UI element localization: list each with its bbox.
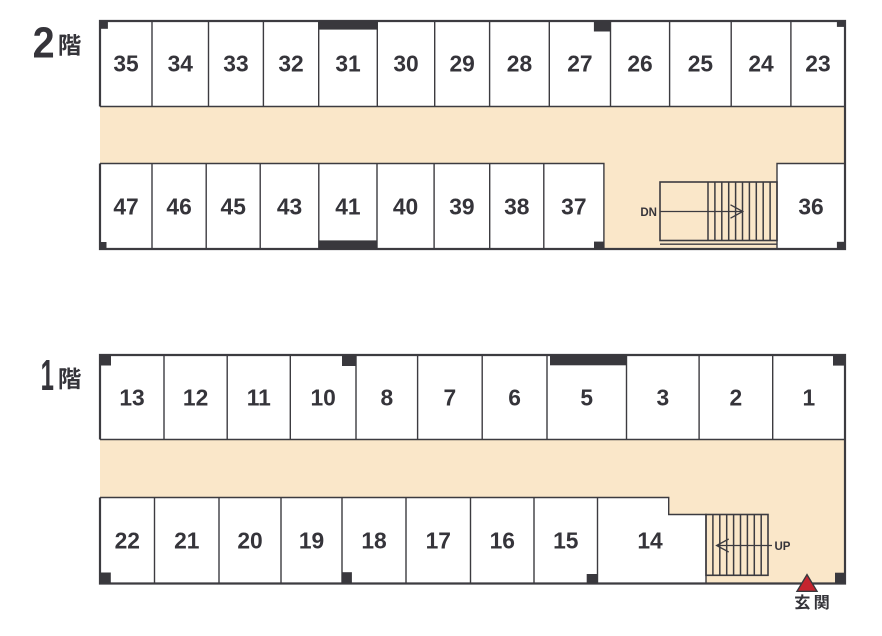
svg-text:24: 24: [748, 51, 774, 77]
svg-text:5: 5: [580, 384, 593, 410]
svg-text:21: 21: [174, 528, 200, 554]
svg-text:6: 6: [508, 384, 521, 410]
svg-text:30: 30: [393, 51, 418, 77]
svg-text:8: 8: [380, 384, 393, 410]
svg-text:45: 45: [221, 193, 247, 219]
svg-text:29: 29: [449, 51, 474, 77]
svg-text:31: 31: [335, 51, 361, 77]
svg-text:27: 27: [567, 51, 592, 77]
svg-text:23: 23: [805, 51, 830, 77]
svg-text:35: 35: [113, 51, 139, 77]
svg-text:2: 2: [33, 20, 55, 68]
svg-text:36: 36: [798, 193, 823, 219]
svg-text:13: 13: [119, 384, 144, 410]
svg-text:39: 39: [449, 193, 474, 219]
svg-text:10: 10: [310, 384, 335, 410]
svg-text:40: 40: [393, 193, 418, 219]
svg-text:19: 19: [299, 528, 324, 554]
svg-text:1: 1: [41, 352, 54, 400]
svg-text:18: 18: [361, 528, 386, 554]
svg-text:15: 15: [553, 528, 579, 554]
svg-text:26: 26: [627, 51, 652, 77]
svg-text:1: 1: [803, 384, 816, 410]
svg-text:12: 12: [183, 384, 208, 410]
svg-text:14: 14: [637, 528, 663, 554]
svg-text:11: 11: [247, 384, 271, 410]
svg-text:47: 47: [113, 193, 138, 219]
svg-text:38: 38: [504, 193, 529, 219]
svg-text:41: 41: [335, 193, 361, 219]
svg-text:25: 25: [688, 51, 714, 77]
svg-text:32: 32: [278, 51, 303, 77]
svg-text:DN: DN: [640, 207, 657, 219]
svg-text:20: 20: [237, 528, 262, 554]
svg-text:28: 28: [507, 51, 532, 77]
svg-text:43: 43: [277, 193, 302, 219]
svg-text:3: 3: [656, 384, 669, 410]
svg-text:16: 16: [490, 528, 515, 554]
svg-text:2: 2: [730, 384, 743, 410]
svg-text:17: 17: [426, 528, 451, 554]
svg-text:46: 46: [166, 193, 191, 219]
svg-text:7: 7: [444, 384, 457, 410]
svg-text:34: 34: [168, 51, 194, 77]
svg-text:37: 37: [561, 193, 586, 219]
svg-text:22: 22: [115, 528, 140, 554]
svg-text:UP: UP: [775, 541, 791, 553]
svg-text:33: 33: [223, 51, 248, 77]
